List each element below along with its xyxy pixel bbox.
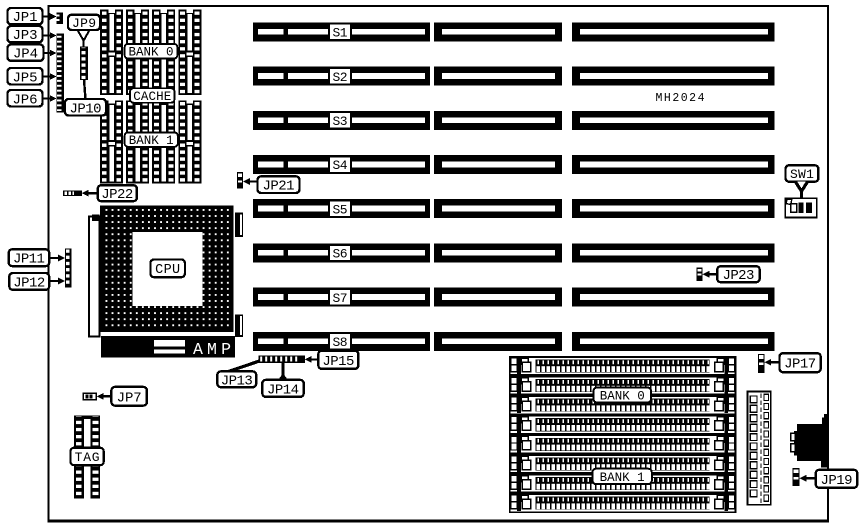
svg-text:JP12: JP12 [13,275,45,291]
svg-text:JP13: JP13 [221,373,253,389]
svg-text:BANK 0: BANK 0 [600,390,645,404]
svg-text:S7: S7 [333,291,348,306]
svg-text:S4: S4 [333,158,348,173]
svg-text:BANK 0: BANK 0 [129,46,174,60]
svg-text:JP22: JP22 [101,187,133,203]
svg-text:CPU: CPU [155,263,180,278]
svg-text:S3: S3 [333,114,348,129]
svg-text:JP9: JP9 [72,16,96,31]
svg-text:TAG: TAG [75,450,100,465]
svg-text:BANK 1: BANK 1 [600,471,645,485]
svg-text:JP21: JP21 [263,179,295,195]
svg-text:JP15: JP15 [322,354,354,370]
svg-text:S5: S5 [333,202,348,217]
svg-text:JP4: JP4 [13,47,38,63]
svg-text:JP6: JP6 [13,92,38,108]
svg-text:JP7: JP7 [117,390,142,406]
svg-text:JP23: JP23 [722,268,754,284]
svg-text:JP19: JP19 [821,473,853,489]
svg-text:JP1: JP1 [13,10,38,26]
svg-text:AMP: AMP [193,340,231,359]
svg-text:JP10: JP10 [70,101,102,117]
svg-text:JP17: JP17 [784,357,816,373]
svg-text:JP14: JP14 [267,382,299,398]
svg-text:JP3: JP3 [13,28,38,44]
svg-text:S2: S2 [333,70,348,85]
svg-text:S1: S1 [333,26,348,41]
svg-text:S8: S8 [333,335,348,350]
svg-text:JP11: JP11 [13,252,45,268]
svg-text:SW1: SW1 [790,167,814,182]
svg-text:BANK 1: BANK 1 [129,134,174,148]
svg-text:CACHE: CACHE [133,90,171,104]
svg-text:S6: S6 [333,247,348,262]
svg-text:JP5: JP5 [13,70,38,86]
